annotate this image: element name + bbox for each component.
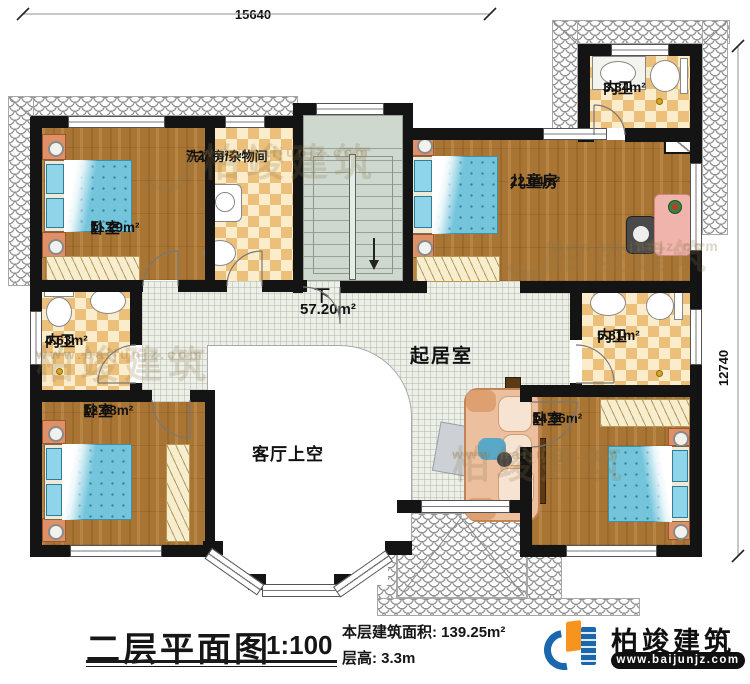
wall: [397, 500, 423, 513]
door-stopper: [656, 370, 663, 377]
window: [543, 128, 607, 140]
wall: [130, 287, 142, 345]
wall: [403, 281, 427, 293]
roof-top-right-left-strip: [552, 20, 578, 142]
floor-area-row: 本层建筑面积: 139.25m²: [342, 621, 505, 642]
wall: [293, 103, 303, 293]
nightstand: [42, 518, 66, 542]
window: [225, 116, 265, 128]
pillow: [46, 164, 64, 194]
brand-logo-building-blue-icon: [581, 627, 596, 665]
bed-sheet: [608, 446, 672, 522]
wall: [655, 545, 702, 557]
roof-right-strip: [702, 20, 728, 235]
stair-arrow-head: [369, 260, 379, 270]
nightstand: [412, 234, 434, 258]
toilet: [646, 292, 674, 320]
nightstand: [42, 134, 66, 160]
wall: [520, 385, 702, 397]
wardrobe: [416, 256, 500, 282]
window: [316, 103, 384, 115]
nightstand: [42, 232, 66, 258]
dimension-top: 15640: [210, 7, 296, 23]
window: [421, 500, 510, 513]
wardrobe: [166, 444, 190, 542]
wall: [30, 545, 72, 557]
toilet: [650, 60, 680, 92]
monitor-glow: [633, 226, 649, 242]
window: [70, 545, 162, 557]
wardrobe: [600, 399, 690, 427]
stair-direction-label: 下: [314, 282, 330, 306]
bay-window: [262, 584, 340, 597]
nightstand: [668, 520, 690, 540]
plant-flower: [672, 204, 678, 210]
wall: [205, 390, 215, 557]
wall: [520, 545, 568, 557]
window: [566, 545, 657, 557]
stair-arrow-stem: [373, 238, 375, 262]
plan-scale: 1:100: [266, 630, 333, 661]
floor-area-label: 本层建筑面积:: [342, 624, 437, 641]
nightstand: [42, 420, 66, 444]
wall: [520, 281, 702, 293]
wall: [30, 390, 152, 402]
bed-sheet: [432, 156, 498, 234]
pillow: [46, 198, 64, 228]
pillow: [46, 484, 62, 516]
window: [68, 116, 165, 128]
pillow: [414, 196, 432, 228]
toilet-tank: [674, 290, 683, 320]
person-head: [497, 452, 512, 467]
window: [690, 309, 702, 365]
floor-height-row: 层高: 3.3m: [342, 647, 415, 668]
roof-bottom-center: [397, 513, 527, 598]
floor-height-label: 层高:: [342, 650, 377, 667]
dimension-right: 12740: [716, 338, 732, 398]
roof-top-left-band: [8, 96, 298, 116]
toilet: [46, 297, 72, 327]
window: [690, 163, 702, 251]
floor-height-value: 3.3m: [381, 650, 415, 667]
wardrobe: [46, 256, 140, 282]
floor-plan-canvas: 卧室 11.29m² 洗衣房/杂物间 7.26m² 儿童房 22.04m² 内卫…: [0, 0, 750, 684]
pillow: [414, 160, 432, 192]
title-underline-thin: [86, 666, 337, 667]
wall: [30, 280, 143, 292]
wall: [293, 281, 303, 293]
door-stopper: [656, 98, 663, 105]
void-area: [207, 345, 412, 543]
brand-website: www.baijunjz.com: [611, 652, 745, 669]
wall: [205, 280, 227, 292]
pillow: [46, 448, 62, 480]
wall: [403, 103, 413, 293]
sofa-armrest: [466, 390, 496, 412]
roof-bottom-band: [377, 598, 640, 616]
floor-area-value: 139.25m²: [441, 624, 505, 641]
bay-wall-stub: [385, 541, 412, 555]
brand-logo-building-orange-icon: [566, 620, 581, 652]
sink: [590, 290, 626, 316]
washing-machine-door: [215, 192, 235, 212]
stair-handrail: [349, 154, 356, 280]
pillow: [672, 450, 688, 482]
wall: [690, 44, 702, 556]
window: [611, 44, 669, 56]
wall: [570, 281, 582, 340]
plan-title: 二层平面图: [86, 622, 271, 671]
wall: [520, 385, 532, 402]
wall: [625, 128, 702, 142]
window: [30, 311, 42, 365]
bed-sheet: [62, 444, 132, 520]
pillow: [672, 486, 688, 518]
toilet-tank: [680, 58, 688, 94]
nightstand: [668, 428, 690, 446]
door-stopper: [56, 368, 63, 375]
wall: [508, 500, 527, 513]
